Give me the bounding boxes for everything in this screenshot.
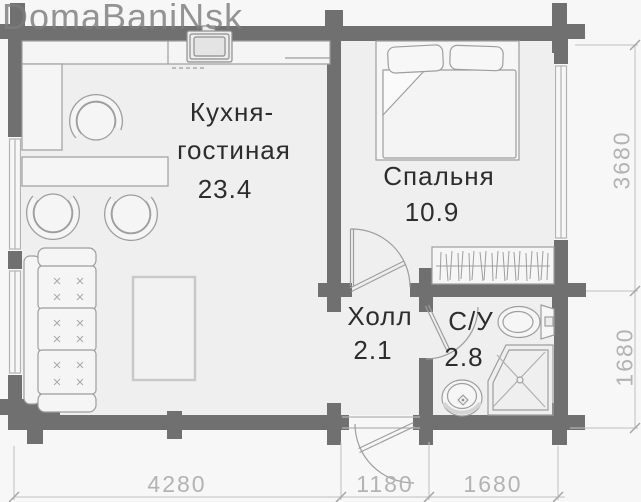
pillow [387, 45, 443, 74]
dining-chair [30, 194, 76, 236]
watermark: DomaBaniNsk [2, 0, 243, 38]
room-label-hall: Холл [347, 303, 412, 329]
dimension-bottom-kitchen: 4280 [147, 473, 206, 496]
room-area-hall: 2.1 [353, 337, 392, 363]
room-area-bedroom: 10.9 [405, 199, 460, 225]
double-bed [376, 41, 519, 160]
sofa [24, 248, 96, 412]
room-area-kitchen-living: 23.4 [198, 176, 253, 202]
dimension-right-bathroom: 1680 [614, 327, 637, 386]
coffee-table [133, 277, 195, 380]
room-label-bathroom: С/У [448, 308, 494, 334]
dimension-bottom-hall: 1180 [356, 473, 413, 496]
washbasin [442, 380, 482, 416]
room-label-bedroom: Спальня [383, 163, 494, 189]
dining-chair [108, 195, 154, 237]
room-area-bathroom: 2.8 [444, 344, 483, 370]
dining-table [22, 157, 168, 186]
room-label-kitchen-living-line1: Кухня- [190, 99, 274, 125]
toilet [498, 305, 554, 339]
room-label-kitchen-living-line2: гостиная [177, 137, 291, 163]
floor-plan-page: DomaBaniNsk Кухня- гостиная 23.4 Спальня… [0, 0, 641, 502]
dimension-right-bedroom: 3680 [611, 130, 634, 189]
floor-plan-drawing [0, 0, 641, 502]
pillow [450, 45, 504, 71]
wardrobe [432, 247, 554, 284]
dimension-bottom-bathroom: 1680 [463, 473, 522, 496]
